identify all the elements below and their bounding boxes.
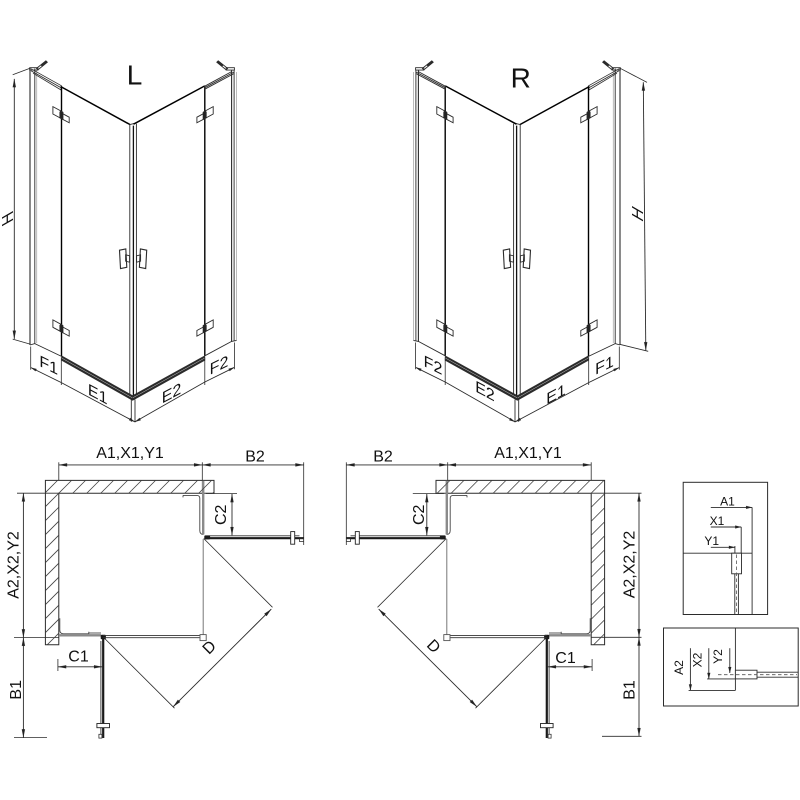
svg-text:R: R (511, 63, 531, 94)
svg-text:A1,X1,Y1: A1,X1,Y1 (96, 445, 164, 462)
svg-text:Y2: Y2 (711, 649, 725, 664)
svg-text:A2: A2 (672, 660, 686, 675)
svg-text:C1: C1 (68, 649, 89, 666)
svg-text:C2: C2 (411, 504, 428, 525)
svg-text:A2,X2,Y2: A2,X2,Y2 (6, 531, 23, 599)
svg-text:X1: X1 (710, 514, 725, 528)
svg-text:C2: C2 (213, 504, 230, 525)
svg-text:B2: B2 (245, 449, 265, 466)
svg-text:L: L (127, 60, 143, 91)
svg-text:A2,X2,Y2: A2,X2,Y2 (622, 531, 639, 599)
svg-text:B1: B1 (622, 680, 639, 700)
svg-text:A1,X1,Y1: A1,X1,Y1 (494, 445, 562, 462)
svg-text:B1: B1 (8, 680, 25, 700)
svg-text:C1: C1 (555, 650, 576, 667)
svg-text:B2: B2 (373, 449, 393, 466)
svg-text:A1: A1 (720, 494, 735, 508)
svg-text:X2: X2 (691, 652, 705, 667)
svg-text:Y1: Y1 (704, 534, 719, 548)
